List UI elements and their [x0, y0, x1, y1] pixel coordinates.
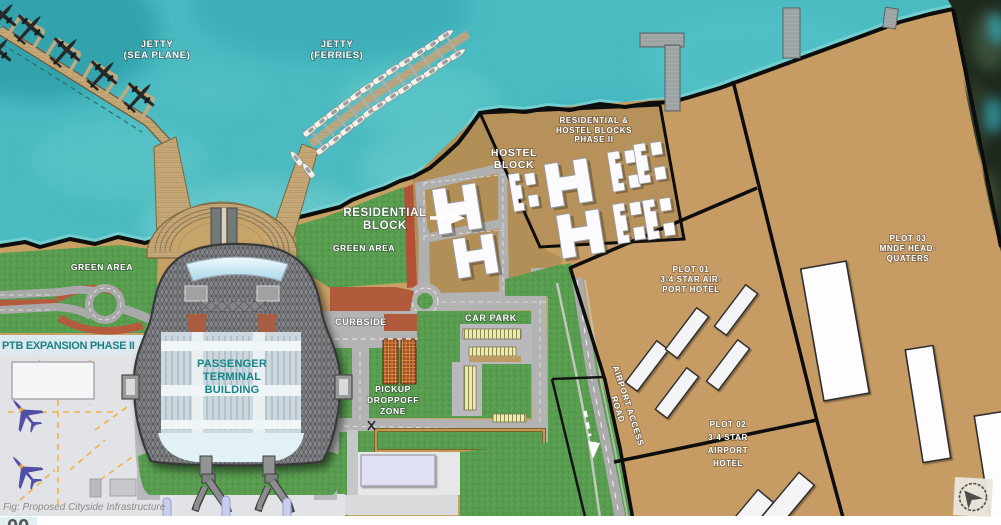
svg-text:HOTEL: HOTEL: [713, 459, 743, 468]
svg-text:PICKUP: PICKUP: [375, 384, 411, 394]
svg-text:AIRPORT: AIRPORT: [708, 446, 748, 455]
svg-text:(FERRIES): (FERRIES): [311, 50, 364, 61]
svg-text:MNDF HEAD-: MNDF HEAD-: [880, 244, 937, 253]
svg-text:BLOCK: BLOCK: [363, 220, 407, 232]
svg-text:RESIDENTIAL &: RESIDENTIAL &: [560, 116, 629, 125]
svg-text:PHASE II: PHASE II: [574, 135, 613, 144]
svg-text:PORT HOTEL: PORT HOTEL: [662, 285, 720, 294]
svg-text:PLOT 02: PLOT 02: [710, 420, 747, 429]
svg-text:GREEN AREA: GREEN AREA: [71, 262, 133, 272]
svg-text:CURBSIDE: CURBSIDE: [335, 317, 387, 327]
svg-text:PTB EXPANSION PHASE II: PTB EXPANSION PHASE II: [2, 340, 135, 352]
svg-text:ZONE: ZONE: [380, 406, 406, 416]
svg-text:Fig: Proposed Cityside Infrast: Fig: Proposed Cityside Infrastructure: [3, 502, 166, 513]
svg-text:PASSENGER: PASSENGER: [197, 358, 267, 370]
svg-text:BUILDING: BUILDING: [205, 384, 260, 396]
svg-text:TERMINAL: TERMINAL: [203, 371, 262, 383]
svg-text:PLOT 01: PLOT 01: [673, 265, 710, 274]
svg-text:HOSTEL BLOCKS: HOSTEL BLOCKS: [556, 126, 632, 135]
svg-text:BLOCK: BLOCK: [494, 159, 534, 171]
svg-text:GREEN AREA: GREEN AREA: [333, 243, 395, 253]
svg-text:DROPPOFF: DROPPOFF: [367, 395, 419, 405]
svg-text:JETTY: JETTY: [141, 39, 174, 50]
svg-text:00: 00: [7, 516, 29, 525]
svg-text:PLOT 03: PLOT 03: [890, 234, 927, 243]
svg-text:(SEA PLANE): (SEA PLANE): [124, 50, 191, 61]
svg-text:3-4 STAR AIR-: 3-4 STAR AIR-: [660, 275, 721, 284]
svg-text:3-4 STAR: 3-4 STAR: [708, 433, 748, 442]
svg-text:HOSTEL: HOSTEL: [491, 147, 537, 159]
svg-text:CAR PARK: CAR PARK: [465, 313, 517, 323]
svg-text:QUATERS: QUATERS: [887, 254, 930, 263]
svg-text:RESIDENTIAL: RESIDENTIAL: [343, 207, 426, 219]
svg-text:JETTY: JETTY: [321, 39, 354, 50]
